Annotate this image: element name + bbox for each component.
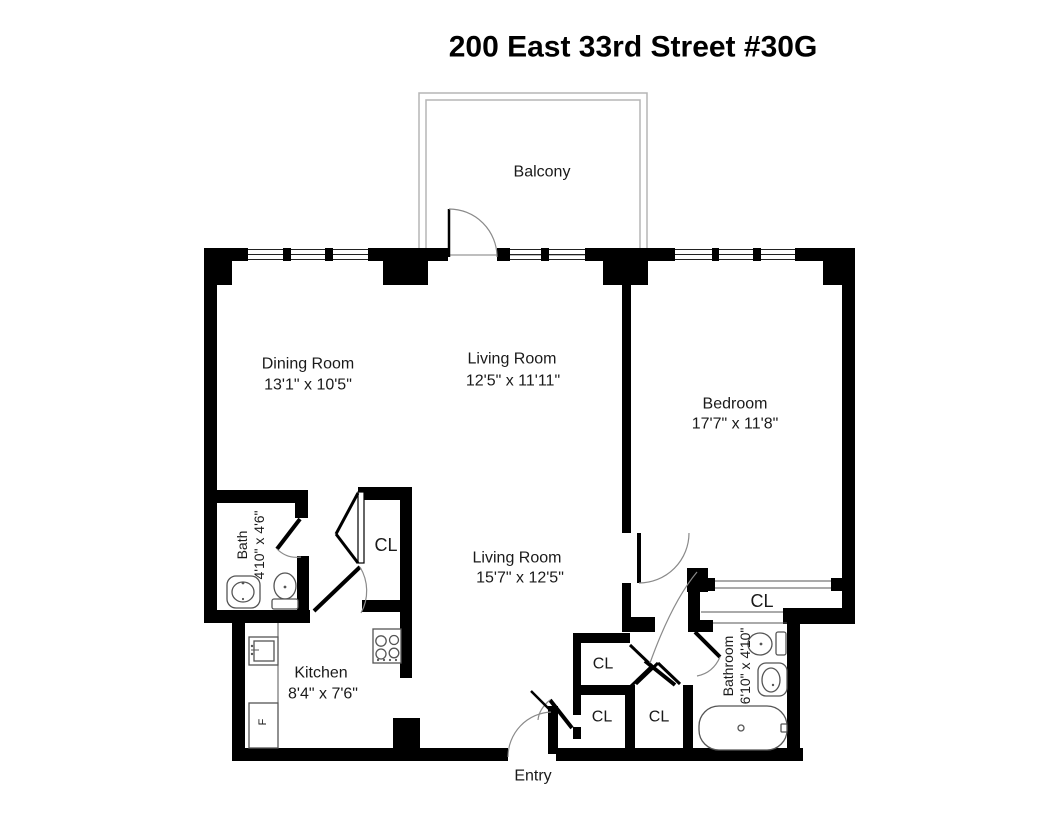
balcony-door xyxy=(449,209,497,257)
dining-room-label: Dining Room xyxy=(262,356,354,373)
dining-room-dims: 13'1" x 10'5" xyxy=(264,377,352,394)
entry-label: Entry xyxy=(514,768,551,785)
living-room-lower-label: Living Room xyxy=(473,550,562,567)
bedroom-closet-label: CL xyxy=(750,591,773,611)
kitchen-door xyxy=(314,567,367,613)
balcony-label: Balcony xyxy=(514,164,571,181)
living-room-upper-label: Living Room xyxy=(468,351,557,368)
living-room-upper-dims: 12'5" x 11'11" xyxy=(466,373,560,390)
floor-plan-page: 200 East 33rd Street #30G Balcony Dining… xyxy=(0,0,1056,816)
entry-closet-right-label: CL xyxy=(649,709,670,726)
hall-closet-upper-label: CL xyxy=(593,656,614,673)
refrigerator-label: F xyxy=(257,718,269,725)
living-room-closet-label: CL xyxy=(374,535,397,555)
bath-door xyxy=(277,519,301,557)
floor-plan-drawing: 200 East 33rd Street #30G Balcony Dining… xyxy=(0,0,1056,816)
kitchen-sink-icon xyxy=(249,637,278,665)
bath-sink-icon xyxy=(227,576,260,608)
living-room-lower-dims: 15'7" x 12'5" xyxy=(476,570,564,587)
entry-door xyxy=(508,691,551,757)
kitchen-label: Kitchen xyxy=(294,665,347,682)
bedroom-label: Bedroom xyxy=(703,396,768,413)
bathroom-sink-icon xyxy=(758,663,787,696)
bathroom-dims: 6'10" x 4'10" xyxy=(737,628,753,705)
bedroom-door xyxy=(639,533,689,583)
plan-title: 200 East 33rd Street #30G xyxy=(449,31,818,64)
stove-icon xyxy=(373,629,401,663)
bath-toilet-icon xyxy=(272,573,298,609)
bath-dims: 4'10" x 4'6" xyxy=(251,510,267,579)
bathtub-icon xyxy=(699,706,787,750)
living-room-closet-door xyxy=(336,493,358,563)
entry-closet-left-label: CL xyxy=(592,709,613,726)
bathroom-label: Bathroom xyxy=(720,636,736,697)
bedroom-dims: 17'7" x 11'8" xyxy=(692,416,779,433)
kitchen-dims: 8'4" x 7'6" xyxy=(288,686,358,703)
bathroom-toilet-icon xyxy=(748,632,786,655)
bathroom-door xyxy=(695,632,720,676)
bath-label: Bath xyxy=(234,531,250,560)
